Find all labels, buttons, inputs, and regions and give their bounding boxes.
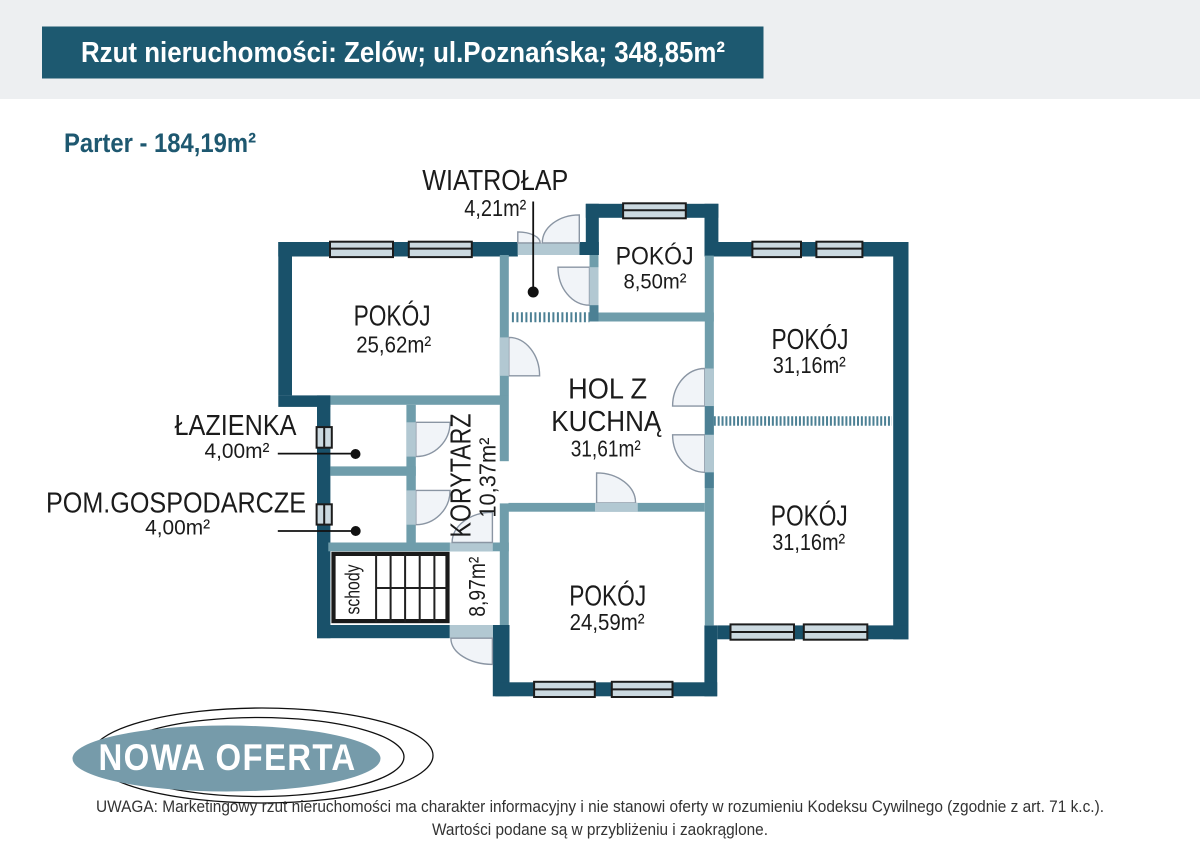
svg-text:31,16m²: 31,16m² xyxy=(772,529,845,555)
svg-text:4,00m²: 4,00m² xyxy=(145,516,210,540)
svg-text:Rzut nieruchomości: Zelów; ul.: Rzut nieruchomości: Zelów; ul.Poznańska;… xyxy=(81,37,725,69)
svg-text:ŁAZIENKA: ŁAZIENKA xyxy=(175,410,297,442)
svg-text:Wartości podane są w przybliże: Wartości podane są w przybliżeniu i zaok… xyxy=(432,820,768,839)
svg-text:schody: schody xyxy=(343,565,365,615)
svg-text:4,00m²: 4,00m² xyxy=(205,439,270,463)
svg-text:UWAGA: Marketingowy rzut nieru: UWAGA: Marketingowy rzut nieruchomości m… xyxy=(96,797,1104,816)
svg-text:WIATROŁAP: WIATROŁAP xyxy=(422,165,568,197)
svg-text:POKÓJ: POKÓJ xyxy=(616,242,694,271)
svg-text:POM.GOSPODARCZE: POM.GOSPODARCZE xyxy=(46,487,306,519)
svg-text:10,37m²: 10,37m² xyxy=(475,437,501,517)
svg-text:8,97m²: 8,97m² xyxy=(464,556,490,616)
svg-text:POKÓJ: POKÓJ xyxy=(771,501,848,533)
svg-text:KORYTARZ: KORYTARZ xyxy=(446,414,478,538)
svg-text:KUCHNĄ: KUCHNĄ xyxy=(551,406,662,438)
svg-text:25,62m²: 25,62m² xyxy=(356,331,431,357)
svg-text:31,61m²: 31,61m² xyxy=(571,436,641,462)
svg-text:24,59m²: 24,59m² xyxy=(570,609,645,635)
svg-text:8,50m²: 8,50m² xyxy=(624,270,687,294)
svg-text:POKÓJ: POKÓJ xyxy=(354,300,431,332)
svg-text:4,21m²: 4,21m² xyxy=(464,195,526,221)
svg-text:31,16m²: 31,16m² xyxy=(773,352,846,378)
svg-text:Parter - 184,19m²: Parter - 184,19m² xyxy=(64,128,256,158)
svg-text:NOWA OFERTA: NOWA OFERTA xyxy=(99,737,357,778)
svg-text:HOL Z: HOL Z xyxy=(568,373,647,405)
